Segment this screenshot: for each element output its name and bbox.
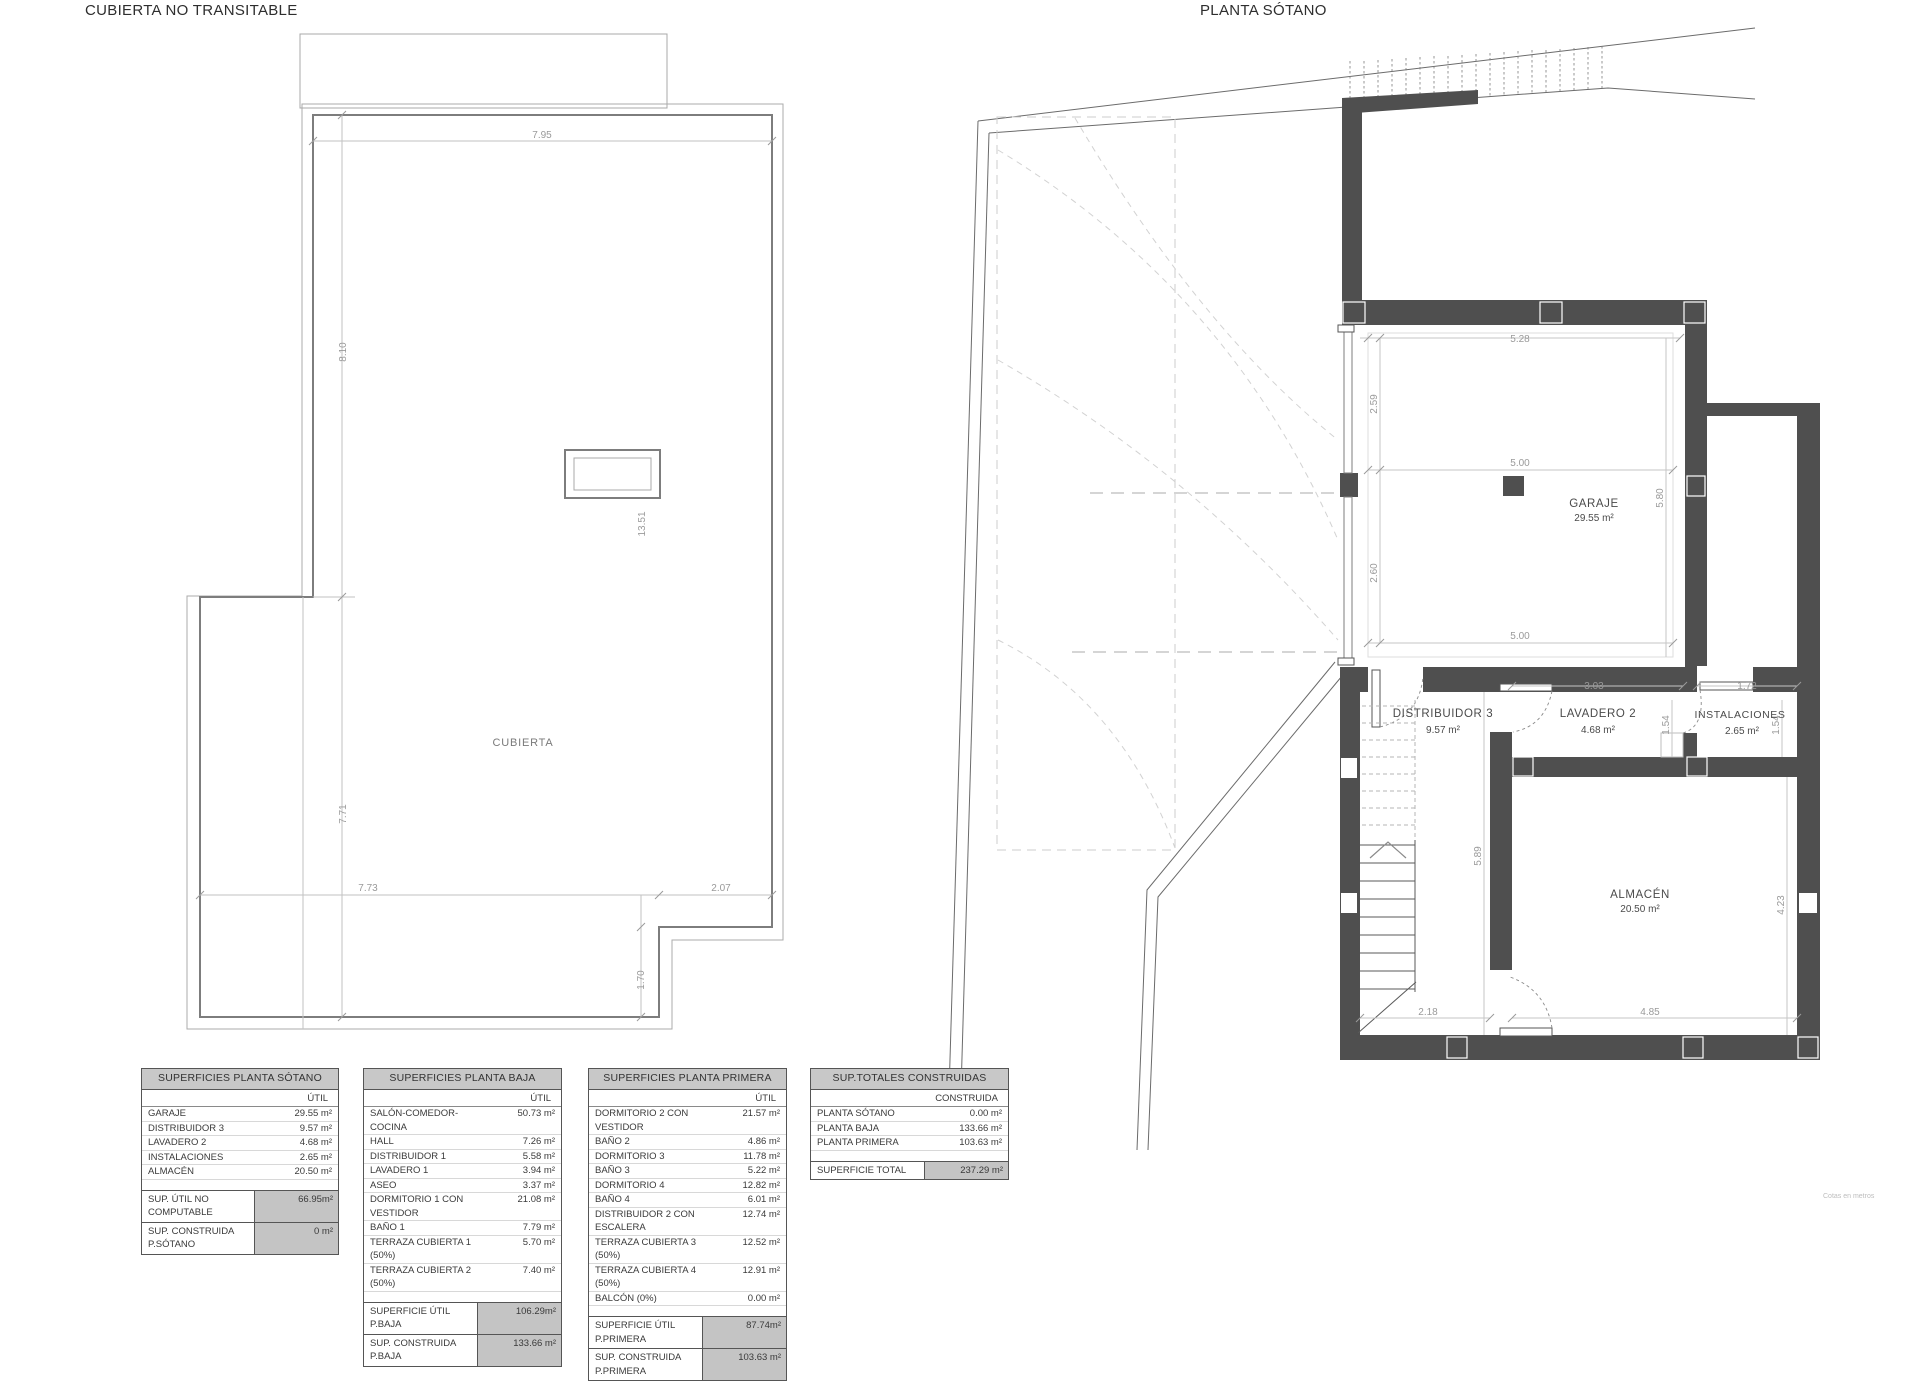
dim-roof-bottom-right: 2.07 xyxy=(711,883,731,894)
table-title: SUPERFICIES PLANTA SÓTANO xyxy=(142,1069,338,1090)
staircase xyxy=(1358,700,1416,1033)
table-gap xyxy=(364,1292,561,1302)
roof-dimension-ticks xyxy=(196,111,776,1021)
table-summary-row: SUP. CONSTRUIDA P.SÓTANO0 m² xyxy=(142,1222,338,1254)
table-row: DORMITORIO 1 CON VESTIDOR21.08 m² xyxy=(364,1193,561,1221)
table-row: BAÑO 46.01 m² xyxy=(589,1193,786,1208)
west-outer-wall xyxy=(1340,667,1360,1060)
table-superficies-planta-baja: SUPERFICIES PLANTA BAJA ÚTIL SALÓN-COMED… xyxy=(363,1068,562,1367)
table-row: BAÑO 35.22 m² xyxy=(589,1164,786,1179)
dim-roof-top: 7.95 xyxy=(532,130,552,141)
stair-direction-arrow xyxy=(1370,842,1406,858)
basement-plan: 5.28 2.59 5.00 5.80 2.60 5.00 3.03 1.72 … xyxy=(947,28,1820,1160)
door-leaf-distribuidor xyxy=(1372,670,1380,727)
table-gap xyxy=(811,1151,1008,1161)
table-summary-row: SUP. ÚTIL NO COMPUTABLE66.95m² xyxy=(142,1190,338,1222)
wall-under-lavadero xyxy=(1490,757,1797,777)
stair-break-line xyxy=(1358,982,1416,1033)
room-area-almacen: 20.50 m² xyxy=(1620,904,1660,915)
south-outer-wall xyxy=(1340,1035,1820,1060)
table-row: TERRAZA CUBIERTA 2 (50%)7.40 m² xyxy=(364,1264,561,1292)
table-gap xyxy=(142,1180,338,1190)
room-area-distribuidor: 9.57 m² xyxy=(1426,725,1461,736)
table-row: DORMITORIO 2 CON VESTIDOR21.57 m² xyxy=(589,1107,786,1135)
retaining-wall-west xyxy=(1342,98,1362,302)
table-row: PLANTA PRIMERA103.63 m² xyxy=(811,1136,1008,1151)
dim-218: 2.18 xyxy=(1418,1007,1438,1018)
room-label-garaje: GARAJE xyxy=(1569,498,1619,510)
basement-walls xyxy=(1340,90,1820,1060)
dim-154a: 1.54 xyxy=(1661,715,1672,735)
dim-almacen-485: 4.85 xyxy=(1640,1007,1660,1018)
door-leaf-lavadero xyxy=(1500,684,1552,691)
table-row: ASEO3.37 m² xyxy=(364,1179,561,1194)
table-summary-row: SUP. CONSTRUIDA P.PRIMERA103.63 m² xyxy=(589,1348,786,1380)
dim-garage-260: 2.60 xyxy=(1369,563,1380,583)
table-row: DORMITORIO 311.78 m² xyxy=(589,1150,786,1165)
table-superficies-planta-primera: SUPERFICIES PLANTA PRIMERA ÚTIL DORMITOR… xyxy=(588,1068,787,1381)
table-col-header: ÚTIL xyxy=(589,1090,786,1108)
upper-floor-projection-dashed xyxy=(997,117,1175,850)
table-col-header: CONSTRUIDA xyxy=(811,1090,1008,1108)
table-row: BAÑO 24.86 m² xyxy=(589,1135,786,1150)
roof-room-label: CUBIERTA xyxy=(492,737,553,749)
table-title: SUPERFICIES PLANTA PRIMERA xyxy=(589,1069,786,1090)
table-gap xyxy=(589,1306,786,1316)
room-label-instalaciones: INSTALACIONES xyxy=(1694,709,1785,721)
dim-distribuidor-589: 5.89 xyxy=(1473,846,1484,866)
dim-roof-left-upper: 8.10 xyxy=(338,342,349,362)
roof-plan: 7.95 8.10 7.71 13.51 7.73 2.07 1.70 CUBI… xyxy=(187,34,783,1029)
table-col-header: ÚTIL xyxy=(364,1090,561,1108)
roof-outline-inner xyxy=(200,115,772,1017)
table-title: SUP.TOTALES CONSTRUIDAS xyxy=(811,1069,1008,1090)
table-totales-construidas: SUP.TOTALES CONSTRUIDAS CONSTRUIDA PLANT… xyxy=(810,1068,1009,1180)
room-label-lavadero: LAVADERO 2 xyxy=(1560,708,1637,720)
dim-almacen-423: 4.23 xyxy=(1776,895,1787,915)
table-row: DISTRIBUIDOR 2 CON ESCALERA12.74 m² xyxy=(589,1208,786,1236)
dim-garage-259: 2.59 xyxy=(1369,394,1380,414)
table-row: ALMACÉN20.50 m² xyxy=(142,1165,338,1180)
door-arc-almacen xyxy=(1510,977,1552,1028)
door-arc-lavadero xyxy=(1513,691,1552,732)
retaining-wall-angled xyxy=(1342,90,1478,114)
dim-garage-500b: 5.00 xyxy=(1510,631,1530,642)
stair-treads-above-dashed xyxy=(1362,706,1415,825)
wall-lavadero-instalaciones xyxy=(1683,733,1697,757)
roof-outline-outer xyxy=(187,104,783,1029)
room-area-instalaciones: 2.65 m² xyxy=(1725,726,1760,737)
table-summary-row: SUPERFICIE TOTAL237.29 m² xyxy=(811,1161,1008,1180)
table-row: DISTRIBUIDOR 15.58 m² xyxy=(364,1150,561,1165)
dim-garage-500a: 5.00 xyxy=(1510,458,1530,469)
east-outer-wall xyxy=(1797,403,1820,1060)
garage-north-wall xyxy=(1342,300,1707,325)
garage-column xyxy=(1503,476,1524,496)
table-row: PLANTA SÓTANO0.00 m² xyxy=(811,1107,1008,1122)
driveway-arcs xyxy=(998,118,1338,848)
table-row: DISTRIBUIDOR 39.57 m² xyxy=(142,1122,338,1137)
table-superficies-planta-sotano: SUPERFICIES PLANTA SÓTANO ÚTIL GARAJE29.… xyxy=(141,1068,339,1255)
table-summary-row: SUPERFICIE ÚTIL P.PRIMERA87.74m² xyxy=(589,1316,786,1348)
table-row: TERRAZA CUBIERTA 3 (50%)12.52 m² xyxy=(589,1236,786,1264)
dim-roof-notch: 1.70 xyxy=(636,970,647,990)
room-label-distribuidor: DISTRIBUIDOR 3 xyxy=(1393,708,1493,720)
door-openings xyxy=(1341,666,1817,1035)
roof-dimension-lines xyxy=(200,115,772,1029)
table-summary-row: SUP. CONSTRUIDA P.BAJA133.66 m² xyxy=(364,1334,561,1366)
dim-roof-skylight: 13.51 xyxy=(637,511,648,536)
garage-door-pier xyxy=(1340,473,1358,497)
roof-upper-structure xyxy=(300,34,667,108)
room-label-almacen: ALMACÉN xyxy=(1610,888,1670,901)
room-area-lavadero: 4.68 m² xyxy=(1581,725,1616,736)
table-row: BAÑO 17.79 m² xyxy=(364,1221,561,1236)
table-col-header: ÚTIL xyxy=(142,1090,338,1108)
table-row: GARAJE29.55 m² xyxy=(142,1107,338,1122)
drawing-sheet: CUBIERTA NO TRANSITABLE PLANTA SÓTANO xyxy=(0,0,1920,1280)
table-row: TERRAZA CUBIERTA 4 (50%)12.91 m² xyxy=(589,1264,786,1292)
door-leaf-almacen xyxy=(1500,1028,1552,1036)
stair-treads xyxy=(1360,845,1415,989)
table-row: BALCÓN (0%)0.00 m² xyxy=(589,1292,786,1307)
table-row: HALL7.26 m² xyxy=(364,1135,561,1150)
table-row: INSTALACIONES2.65 m² xyxy=(142,1151,338,1166)
dim-roof-left-lower: 7.71 xyxy=(338,804,349,824)
dim-roof-bottom-left: 7.73 xyxy=(358,883,378,894)
units-footnote: Cotas en metros xyxy=(1823,1193,1875,1200)
table-summary-row: SUPERFICIE ÚTIL P.BAJA106.29m² xyxy=(364,1302,561,1334)
dim-garage-528: 5.28 xyxy=(1510,334,1530,345)
table-row: SALÓN-COMEDOR-COCINA50.73 m² xyxy=(364,1107,561,1135)
table-row: PLANTA BAJA133.66 m² xyxy=(811,1122,1008,1137)
table-title: SUPERFICIES PLANTA BAJA xyxy=(364,1069,561,1090)
skylight xyxy=(565,450,660,498)
table-row: DORMITORIO 412.82 m² xyxy=(589,1179,786,1194)
dim-instalaciones-172: 1.72 xyxy=(1737,681,1757,692)
table-row: LAVADERO 13.94 m² xyxy=(364,1164,561,1179)
room-area-garaje: 29.55 m² xyxy=(1574,513,1614,524)
table-row: TERRAZA CUBIERTA 1 (50%)5.70 m² xyxy=(364,1236,561,1264)
table-row: LAVADERO 24.68 m² xyxy=(142,1136,338,1151)
dim-garage-580: 5.80 xyxy=(1655,488,1666,508)
dim-lavadero-303: 3.03 xyxy=(1584,681,1604,692)
